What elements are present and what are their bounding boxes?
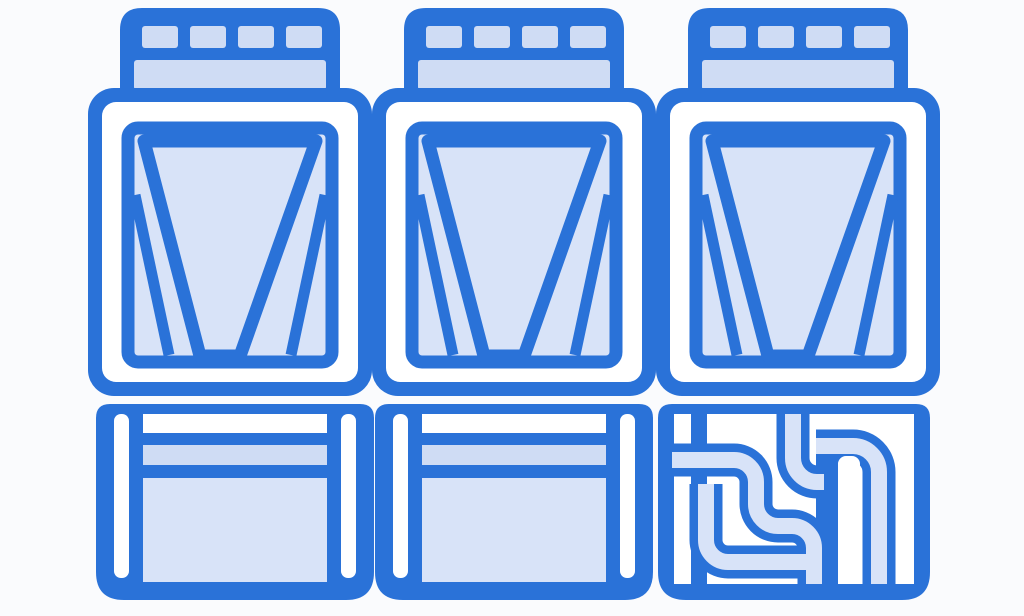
- chiller-unit-1: [88, 8, 374, 600]
- chiller-illustration: [0, 0, 1024, 616]
- service-base-1: [96, 404, 374, 600]
- chiller-unit-2: [372, 8, 656, 600]
- service-base-2: [375, 404, 653, 600]
- unit-top-2: [372, 8, 656, 396]
- chiller-unit-3: [656, 8, 940, 600]
- pipe-base: [658, 404, 930, 600]
- unit-top-1: [88, 8, 372, 396]
- unit-top-3: [656, 8, 940, 396]
- chiller-units-icon: [0, 0, 1024, 616]
